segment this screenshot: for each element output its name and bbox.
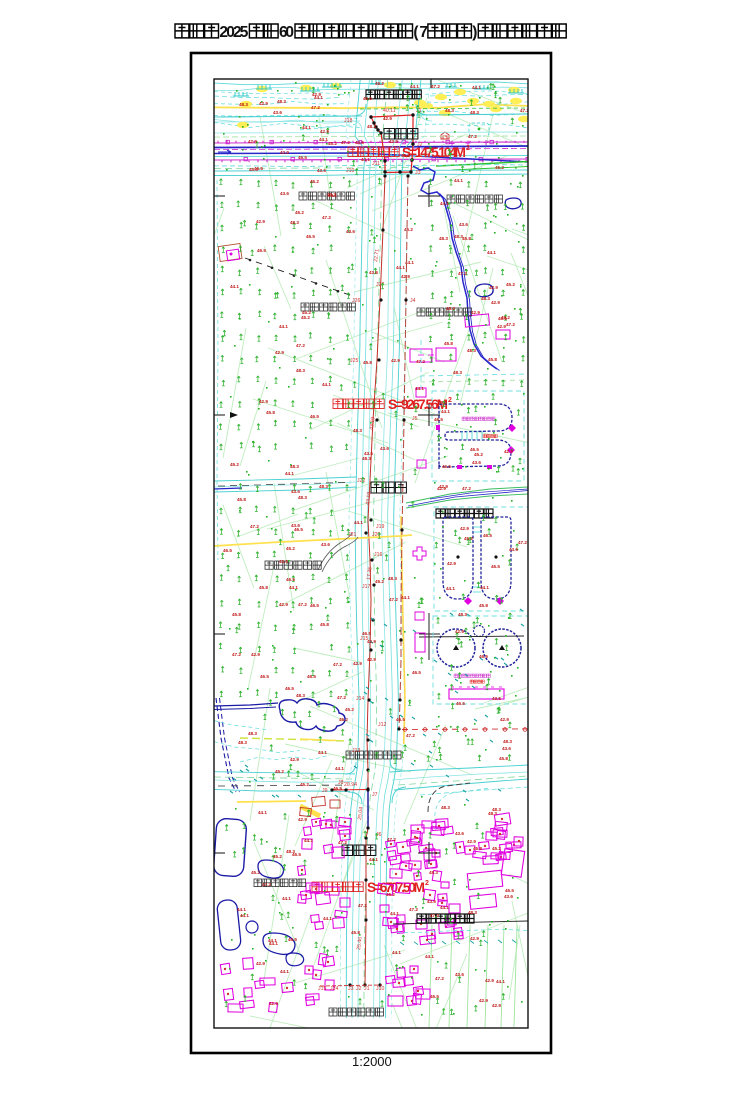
svg-text:46.5: 46.5 (442, 464, 451, 469)
svg-text:J1: J1 (364, 986, 370, 992)
svg-text:44.1: 44.1 (354, 520, 363, 525)
svg-text:42.9: 42.9 (491, 300, 500, 305)
svg-text:42.9: 42.9 (470, 936, 479, 941)
svg-text:44.1: 44.1 (319, 137, 328, 142)
svg-text:44.1: 44.1 (410, 84, 419, 89)
svg-text:45.2: 45.2 (328, 141, 337, 146)
svg-text:43.6: 43.6 (355, 140, 364, 145)
svg-text:42.9: 42.9 (269, 1001, 278, 1006)
svg-text:42.9: 42.9 (497, 324, 506, 329)
svg-text:J13: J13 (352, 748, 360, 754)
svg-text:43.6: 43.6 (279, 559, 288, 564)
svg-text:44.1: 44.1 (304, 838, 313, 843)
svg-text:J11: J11 (372, 161, 380, 167)
svg-text:45.8: 45.8 (237, 497, 246, 502)
svg-text:43.6: 43.6 (504, 894, 513, 899)
svg-text:44.1: 44.1 (396, 265, 405, 270)
svg-text:J2: J2 (356, 986, 362, 992)
svg-text:47.2: 47.2 (333, 662, 342, 667)
svg-text:42.9: 42.9 (279, 602, 288, 607)
svg-text:46.5: 46.5 (223, 548, 232, 553)
svg-text:J24: J24 (330, 986, 338, 992)
svg-text:45.2: 45.2 (464, 536, 473, 541)
svg-text:42.9: 42.9 (290, 757, 299, 762)
svg-text:44.1: 44.1 (405, 260, 414, 265)
svg-text:42.9: 42.9 (437, 486, 446, 491)
svg-text:42.9: 42.9 (479, 998, 488, 1003)
svg-text:44.1: 44.1 (454, 178, 463, 183)
svg-text:47.2: 47.2 (337, 695, 346, 700)
svg-text:46.5: 46.5 (310, 414, 319, 419)
svg-text:48.3: 48.3 (429, 870, 438, 875)
svg-text:45.2: 45.2 (501, 315, 510, 320)
svg-text:45.8: 45.8 (266, 410, 275, 415)
svg-text:45.8: 45.8 (444, 341, 453, 346)
svg-text:45.2: 45.2 (506, 282, 515, 287)
svg-text:44.1: 44.1 (322, 382, 331, 387)
svg-text:J10: J10 (376, 986, 384, 992)
svg-text:46.5: 46.5 (456, 701, 465, 706)
svg-text:44.1: 44.1 (480, 585, 489, 590)
svg-text:45.2: 45.2 (275, 769, 284, 774)
svg-text:J25: J25 (350, 358, 358, 364)
svg-text:48.3: 48.3 (367, 124, 376, 129)
svg-text:42.9: 42.9 (455, 629, 464, 634)
svg-text:J3: J3 (415, 170, 421, 176)
svg-text:43.6: 43.6 (317, 168, 326, 173)
svg-text:45.2: 45.2 (301, 315, 310, 320)
svg-text:44.1: 44.1 (390, 911, 399, 916)
svg-text:45.2: 45.2 (386, 892, 395, 897)
svg-text:44.1: 44.1 (279, 324, 288, 329)
svg-text:43.6: 43.6 (389, 139, 398, 144)
svg-text:47.2: 47.2 (409, 907, 418, 912)
svg-text:42.9: 42.9 (320, 129, 329, 134)
svg-text:45.2: 45.2 (295, 210, 304, 215)
svg-text:44.1: 44.1 (289, 585, 298, 590)
svg-text:45.2: 45.2 (495, 165, 504, 170)
svg-text:44.1: 44.1 (335, 766, 344, 771)
svg-text:42.9: 42.9 (367, 639, 376, 644)
svg-text:47.2: 47.2 (311, 105, 320, 110)
svg-text:48.3: 48.3 (445, 108, 454, 113)
svg-text:47.2: 47.2 (435, 976, 444, 981)
svg-text:45.2: 45.2 (492, 846, 501, 851)
svg-text:42.9: 42.9 (367, 657, 376, 662)
svg-text:44.1: 44.1 (302, 125, 311, 130)
svg-text:J3: J3 (348, 986, 354, 992)
svg-text:J15: J15 (318, 986, 326, 992)
svg-text:J16: J16 (374, 552, 382, 558)
svg-text:J9: J9 (322, 788, 328, 794)
svg-text:42.9: 42.9 (467, 839, 476, 844)
svg-text:J7: J7 (372, 792, 378, 798)
svg-text:45.2: 45.2 (310, 179, 319, 184)
svg-text:47.2: 47.2 (406, 733, 415, 738)
svg-text:J14: J14 (356, 696, 364, 702)
svg-text:46.5: 46.5 (310, 603, 319, 608)
svg-text:46.5: 46.5 (288, 937, 297, 942)
svg-text:48.3: 48.3 (438, 400, 447, 405)
svg-text:J19: J19 (376, 524, 384, 530)
svg-text:45.8: 45.8 (488, 357, 497, 362)
svg-text:47.2: 47.2 (389, 597, 398, 602)
svg-text:45.2: 45.2 (404, 227, 413, 232)
svg-text:42.9: 42.9 (275, 350, 284, 355)
svg-text:44.1: 44.1 (318, 750, 327, 755)
svg-text:43.6: 43.6 (380, 446, 389, 451)
svg-text:46.5: 46.5 (505, 888, 514, 893)
svg-text:47.2: 47.2 (296, 343, 305, 348)
svg-text:42.9: 42.9 (401, 274, 410, 279)
svg-text:48.3: 48.3 (362, 456, 371, 461)
svg-text:46.5: 46.5 (430, 994, 439, 999)
svg-text:43.6: 43.6 (427, 899, 436, 904)
svg-text:46.5: 46.5 (362, 631, 371, 636)
svg-text:45.2: 45.2 (300, 782, 309, 787)
svg-text:J17: J17 (362, 584, 370, 590)
svg-text:46.5: 46.5 (491, 564, 500, 569)
svg-text:44.1: 44.1 (237, 907, 246, 912)
svg-text:42.9: 42.9 (259, 101, 268, 106)
svg-text:43.6: 43.6 (369, 270, 378, 275)
svg-text:48.3: 48.3 (290, 220, 299, 225)
svg-text:44.1: 44.1 (280, 969, 289, 974)
svg-text:44.1: 44.1 (472, 85, 481, 90)
svg-text:48.3: 48.3 (470, 110, 479, 115)
svg-text:48.3: 48.3 (468, 910, 477, 915)
svg-text:44.1: 44.1 (258, 810, 267, 815)
svg-text:42.9: 42.9 (471, 310, 480, 315)
svg-text:42.9: 42.9 (383, 116, 392, 121)
svg-text:45.2: 45.2 (327, 192, 336, 197)
svg-text:45.2: 45.2 (230, 462, 239, 467)
svg-text:47.2: 47.2 (338, 840, 347, 845)
svg-text:45.8: 45.8 (232, 612, 241, 617)
svg-text:47.2: 47.2 (341, 140, 350, 145)
svg-text:47.2: 47.2 (431, 84, 440, 89)
svg-text:42.9: 42.9 (489, 285, 498, 290)
svg-text:45.8: 45.8 (259, 585, 268, 590)
svg-text:42.9: 42.9 (312, 92, 321, 97)
svg-text:42.9: 42.9 (460, 526, 469, 531)
svg-text:43.6: 43.6 (455, 972, 464, 977)
svg-text:46.5: 46.5 (363, 96, 372, 101)
svg-text:45.8: 45.8 (473, 846, 482, 851)
svg-text:43.6: 43.6 (291, 489, 300, 494)
svg-text:45.2: 45.2 (474, 452, 483, 457)
svg-text:J4: J4 (410, 298, 416, 304)
svg-text:48.3: 48.3 (453, 370, 462, 375)
svg-text:47.2: 47.2 (298, 602, 307, 607)
svg-text:44.1: 44.1 (369, 857, 378, 862)
svg-text:45.8: 45.8 (479, 603, 488, 608)
svg-text:48.3: 48.3 (277, 99, 286, 104)
svg-text:44.1: 44.1 (269, 941, 278, 946)
svg-text:46.5: 46.5 (260, 674, 269, 679)
svg-text:42.9: 42.9 (256, 219, 265, 224)
svg-text:2: 2 (466, 145, 470, 152)
svg-text:48.3: 48.3 (296, 693, 305, 698)
svg-text:42.9: 42.9 (492, 1003, 501, 1008)
svg-text:46.5: 46.5 (292, 852, 301, 857)
svg-text:47.2: 47.2 (387, 837, 396, 842)
svg-text:46.5: 46.5 (298, 155, 307, 160)
svg-text:42.9: 42.9 (500, 717, 509, 722)
svg-text:45.2: 45.2 (339, 717, 348, 722)
svg-text:47.2: 47.2 (468, 134, 477, 139)
svg-text:43.6: 43.6 (364, 451, 373, 456)
svg-text:45.8: 45.8 (320, 622, 329, 627)
svg-text:45.2: 45.2 (286, 546, 295, 551)
svg-text:46.5: 46.5 (285, 686, 294, 691)
svg-text:48.3: 48.3 (488, 811, 497, 816)
svg-text:7: 7 (419, 24, 428, 41)
svg-text:48.3: 48.3 (248, 731, 257, 736)
svg-text:60: 60 (279, 24, 294, 41)
svg-text:J18: J18 (344, 118, 352, 124)
svg-text:45.2: 45.2 (401, 153, 410, 158)
svg-text:48.3: 48.3 (503, 739, 512, 744)
svg-text:46.5: 46.5 (306, 234, 315, 239)
svg-text:43.6: 43.6 (280, 191, 289, 196)
svg-text:46.5: 46.5 (396, 717, 405, 722)
svg-text:46.5: 46.5 (483, 533, 492, 538)
svg-text:43.6: 43.6 (291, 523, 300, 528)
svg-text:40.11: 40.11 (383, 108, 396, 114)
svg-text:48.3: 48.3 (296, 368, 305, 373)
svg-text:43.6: 43.6 (321, 542, 330, 547)
svg-text:47.2: 47.2 (250, 524, 259, 529)
svg-text:44.1: 44.1 (415, 386, 424, 391)
svg-text:45.2: 45.2 (375, 81, 384, 86)
svg-text:46.5: 46.5 (412, 670, 421, 675)
svg-text:47.2: 47.2 (262, 882, 271, 887)
svg-text:J12: J12 (378, 722, 386, 728)
svg-text:48.3: 48.3 (446, 306, 455, 311)
svg-text:47.2: 47.2 (322, 215, 331, 220)
svg-text:): ) (472, 24, 477, 41)
svg-text:47.2: 47.2 (506, 322, 515, 327)
svg-text:45.8: 45.8 (499, 756, 508, 761)
svg-text:43.6: 43.6 (472, 460, 481, 465)
svg-text:42.9: 42.9 (280, 150, 289, 155)
svg-text:J2: J2 (417, 142, 423, 148)
svg-text:46.5: 46.5 (254, 166, 263, 171)
svg-text:44.1: 44.1 (285, 471, 294, 476)
svg-text:42.9: 42.9 (298, 817, 307, 822)
svg-text:48.3: 48.3 (290, 464, 299, 469)
svg-text:45.8: 45.8 (363, 360, 372, 365)
svg-text:47.2: 47.2 (416, 359, 425, 364)
svg-text:J27: J27 (376, 282, 384, 288)
svg-text:44.1: 44.1 (323, 916, 332, 921)
svg-text:S=1475.104M: S=1475.104M (402, 145, 466, 160)
svg-text:43.6: 43.6 (346, 229, 355, 234)
svg-text:46.5: 46.5 (479, 654, 488, 659)
svg-text:44.1: 44.1 (496, 979, 505, 984)
svg-text:42.9: 42.9 (353, 661, 362, 666)
svg-text:48.3: 48.3 (481, 296, 490, 301)
svg-text:43.6: 43.6 (509, 547, 518, 552)
svg-text:44.1: 44.1 (446, 586, 455, 591)
svg-text:J10: J10 (346, 168, 354, 174)
svg-text:42.9: 42.9 (391, 358, 400, 363)
svg-text:47.2: 47.2 (462, 486, 471, 491)
svg-text:45.2: 45.2 (345, 707, 354, 712)
svg-text:46.5: 46.5 (257, 248, 266, 253)
svg-text:42.9: 42.9 (447, 561, 456, 566)
svg-text:48.3: 48.3 (238, 740, 247, 745)
svg-text:48.3: 48.3 (239, 102, 248, 107)
svg-text:42.9: 42.9 (485, 978, 494, 983)
svg-text:2: 2 (448, 397, 452, 404)
svg-text:45.8: 45.8 (462, 236, 471, 241)
svg-text:J26: J26 (352, 298, 360, 304)
svg-text:42.9: 42.9 (259, 399, 268, 404)
svg-text:46.5: 46.5 (333, 786, 342, 791)
svg-text:47.2: 47.2 (232, 652, 241, 657)
svg-text:45.2: 45.2 (251, 870, 260, 875)
svg-text:2025: 2025 (219, 24, 248, 41)
svg-text:43.6: 43.6 (502, 746, 511, 751)
svg-text:44.1: 44.1 (401, 595, 410, 600)
svg-text:44.1: 44.1 (361, 157, 370, 162)
svg-text:45.2: 45.2 (273, 854, 282, 859)
svg-text:43.6: 43.6 (455, 831, 464, 836)
svg-text:1:2000: 1:2000 (352, 1054, 392, 1069)
svg-text:48.3: 48.3 (467, 348, 476, 353)
svg-text:47.2: 47.2 (358, 903, 367, 908)
svg-text:44.1: 44.1 (440, 201, 449, 206)
svg-text:44.1: 44.1 (230, 284, 239, 289)
svg-text:44.1: 44.1 (240, 913, 249, 918)
svg-text:44.1: 44.1 (425, 954, 434, 959)
svg-text:46.5: 46.5 (434, 417, 443, 422)
svg-text:47.2: 47.2 (518, 540, 527, 545)
svg-text:43.6: 43.6 (273, 110, 282, 115)
svg-text:44.1: 44.1 (441, 409, 450, 414)
svg-text:48.3: 48.3 (388, 576, 397, 581)
svg-text:45.8: 45.8 (351, 930, 360, 935)
svg-text:2: 2 (425, 880, 429, 887)
svg-text:48.3: 48.3 (298, 495, 307, 500)
svg-text:44.1: 44.1 (440, 905, 449, 910)
svg-text:42.9: 42.9 (251, 652, 260, 657)
svg-text:48.3: 48.3 (458, 612, 467, 617)
svg-text:42.9: 42.9 (256, 961, 265, 966)
svg-text:44.1: 44.1 (282, 896, 291, 901)
svg-text:48.3: 48.3 (441, 805, 450, 810)
svg-text:43.6: 43.6 (492, 696, 501, 701)
svg-text:J5: J5 (412, 416, 418, 422)
svg-text:48.3: 48.3 (439, 236, 448, 241)
svg-text:48.3: 48.3 (319, 484, 328, 489)
svg-text:47.2: 47.2 (430, 913, 439, 918)
svg-text:48.3: 48.3 (353, 428, 362, 433)
svg-text:43.6: 43.6 (459, 222, 468, 227)
svg-text:44.1: 44.1 (487, 250, 496, 255)
svg-text:45.2: 45.2 (375, 579, 384, 584)
svg-text:47.2: 47.2 (458, 271, 467, 276)
svg-text:42.9: 42.9 (504, 449, 513, 454)
svg-text:42.9: 42.9 (248, 139, 257, 144)
svg-text:46.5: 46.5 (286, 577, 295, 582)
svg-text:20.94: 20.94 (344, 782, 357, 788)
svg-text:46.5: 46.5 (307, 674, 316, 679)
svg-text:44.1: 44.1 (392, 950, 401, 955)
